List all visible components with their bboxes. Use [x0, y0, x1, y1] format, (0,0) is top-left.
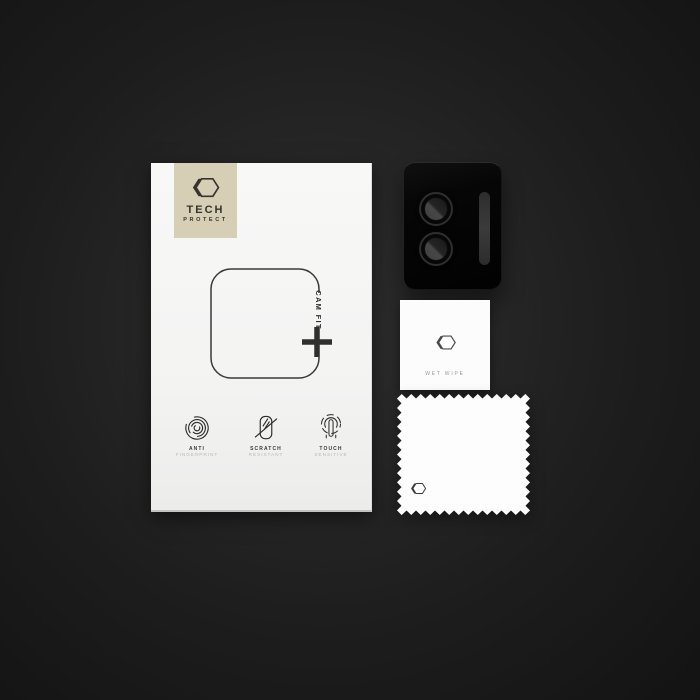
cloth-shape	[397, 394, 530, 515]
camera-protector	[403, 162, 502, 290]
cloth-hexagon-icon	[410, 481, 427, 496]
lens-glass	[425, 198, 447, 220]
cloth-svg	[397, 394, 530, 515]
wetwipe-hexagon-icon	[435, 333, 457, 352]
scratch-icon	[252, 413, 280, 443]
camfit-outline: CAM FIT	[206, 263, 341, 388]
feature-sublabel: SENSITIVE	[314, 453, 347, 458]
product-photo-scene: TECH PROTECT CAM FIT	[0, 0, 700, 700]
brand-subname: PROTECT	[183, 217, 227, 223]
feature-anti-fingerprint: ANTI FINGERPRINT	[165, 413, 229, 458]
feature-label: ANTI	[189, 446, 205, 452]
brand-hexagon-icon	[191, 175, 221, 200]
package-card: TECH PROTECT CAM FIT	[151, 163, 372, 512]
microfiber-cloth	[397, 394, 530, 515]
flash-slot	[479, 192, 490, 265]
feature-row: ANTI FINGERPRINT SCRATCH RESISTANT	[151, 413, 372, 473]
camfit-label: CAM FIT	[314, 290, 323, 330]
camera-lens-bottom	[419, 232, 453, 266]
feature-label: SCRATCH	[250, 446, 282, 452]
lens-glass	[425, 238, 447, 260]
feature-touch-sensitive: TOUCH SENSITIVE	[299, 413, 363, 458]
plus-icon	[302, 327, 332, 357]
feature-label: TOUCH	[319, 446, 342, 452]
feature-scratch-resistant: SCRATCH RESISTANT	[234, 413, 298, 458]
camera-lens-top	[419, 192, 453, 226]
brand-logo-box: TECH PROTECT	[174, 163, 237, 238]
fingerprint-icon	[183, 413, 211, 443]
feature-sublabel: FINGERPRINT	[176, 453, 218, 458]
touch-icon	[317, 413, 345, 443]
wet-wipe-label: WET WIPE	[400, 371, 490, 377]
feature-sublabel: RESISTANT	[249, 453, 284, 458]
wet-wipe-packet: WET WIPE	[400, 300, 490, 390]
brand-name: TECH	[187, 204, 225, 216]
